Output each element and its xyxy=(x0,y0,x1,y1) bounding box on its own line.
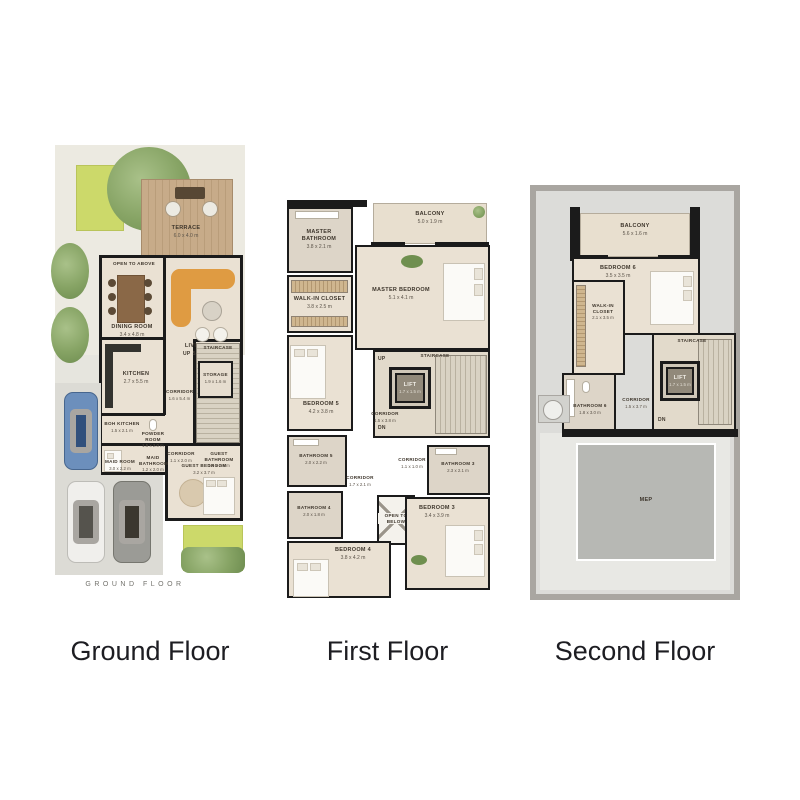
dining-chair-icon xyxy=(108,293,116,301)
wall xyxy=(163,257,166,339)
hedge-icon xyxy=(181,547,245,573)
lift: LIFT 1.7 x 1.5 m xyxy=(389,367,431,409)
room-label-lift: LIFT 1.7 x 1.5 m xyxy=(392,382,428,394)
wardrobe-icon xyxy=(291,316,348,327)
room-label-corridor-2: CORRIDOR 1.7 x 2.1 m xyxy=(343,475,377,487)
toilet-icon xyxy=(582,381,590,393)
bed-icon xyxy=(445,525,485,577)
floor-plan-ground: TERRACE 6.0 x 4.0 m OPEN TO ABOVE DINING… xyxy=(55,145,245,600)
wall xyxy=(287,200,367,207)
wardrobe-icon xyxy=(576,285,586,367)
up-label: UP xyxy=(378,356,386,362)
wall xyxy=(570,207,580,261)
car-roof xyxy=(119,500,145,544)
plant-icon xyxy=(473,206,485,218)
bed-icon xyxy=(203,477,235,515)
sink-icon xyxy=(435,448,457,455)
up-label: UP xyxy=(183,351,191,357)
pouf-icon xyxy=(411,555,427,565)
mep-room xyxy=(576,443,716,561)
caption-second-floor: Second Floor xyxy=(530,636,740,667)
wall xyxy=(101,443,195,446)
room-label-lift: LIFT 1.7 x 1.5 m xyxy=(663,375,697,387)
staircase xyxy=(698,339,732,425)
outdoor-chair-icon xyxy=(165,201,181,217)
dining-table-icon xyxy=(117,275,145,323)
lift: LIFT 1.7 x 1.5 m xyxy=(660,361,700,401)
double-sink-icon xyxy=(295,211,339,219)
caption-first-floor: First Floor xyxy=(285,636,490,667)
tree-icon xyxy=(51,307,89,363)
sofa-icon xyxy=(171,269,191,327)
dining-chair-icon xyxy=(144,307,152,315)
ground-floor-plan-caption: GROUND FLOOR xyxy=(73,581,197,588)
car-gray-icon xyxy=(113,481,151,563)
floor-plan-first: BALCONY 5.0 x 1.9 m MASTER BATHROOM 3.8 … xyxy=(285,195,490,600)
armchair-icon xyxy=(213,327,228,342)
ac-unit-icon xyxy=(543,400,563,420)
wall xyxy=(101,413,165,416)
bed-icon xyxy=(104,450,122,472)
car-roof xyxy=(70,409,92,453)
wall xyxy=(163,339,166,415)
coffee-table-icon xyxy=(202,301,222,321)
wall xyxy=(562,429,738,437)
wall xyxy=(101,337,165,340)
car-blue-icon xyxy=(64,392,98,470)
pouf-icon xyxy=(401,255,423,268)
dn-label: DN xyxy=(378,425,386,431)
car-roof xyxy=(73,500,99,544)
kitchen-counter xyxy=(105,344,141,352)
toilet-icon xyxy=(149,419,157,431)
dn-label: DN xyxy=(658,417,666,423)
staircase xyxy=(435,355,487,434)
bed-icon xyxy=(443,263,485,321)
balcony xyxy=(373,203,487,244)
storage-box xyxy=(198,361,233,398)
sink-icon xyxy=(293,439,319,446)
wardrobe-icon xyxy=(291,280,348,293)
car-white-icon xyxy=(67,481,105,563)
outdoor-table-icon xyxy=(175,187,205,199)
dining-chair-icon xyxy=(144,293,152,301)
kitchen-counter xyxy=(105,344,113,408)
floor-plan-second: BALCONY 5.6 x 1.6 m BEDROOM 6 3.5 x 3.5 … xyxy=(530,185,740,600)
outdoor-chair-icon xyxy=(202,201,218,217)
floorplan-sheet: TERRACE 6.0 x 4.0 m OPEN TO ABOVE DINING… xyxy=(0,0,800,800)
wall xyxy=(690,207,700,261)
bathroom-4 xyxy=(287,491,343,539)
tree-icon xyxy=(51,243,89,299)
room-label-corridor-3: CORRIDOR 1.1 x 1.0 m xyxy=(397,457,427,469)
balcony xyxy=(580,213,690,257)
armchair-icon xyxy=(195,327,210,342)
bed-icon xyxy=(290,345,326,399)
dining-chair-icon xyxy=(144,279,152,287)
dining-chair-icon xyxy=(108,279,116,287)
caption-ground-floor: Ground Floor xyxy=(55,636,245,667)
bed-icon xyxy=(650,271,694,325)
dining-chair-icon xyxy=(108,307,116,315)
bed-icon xyxy=(293,559,329,597)
